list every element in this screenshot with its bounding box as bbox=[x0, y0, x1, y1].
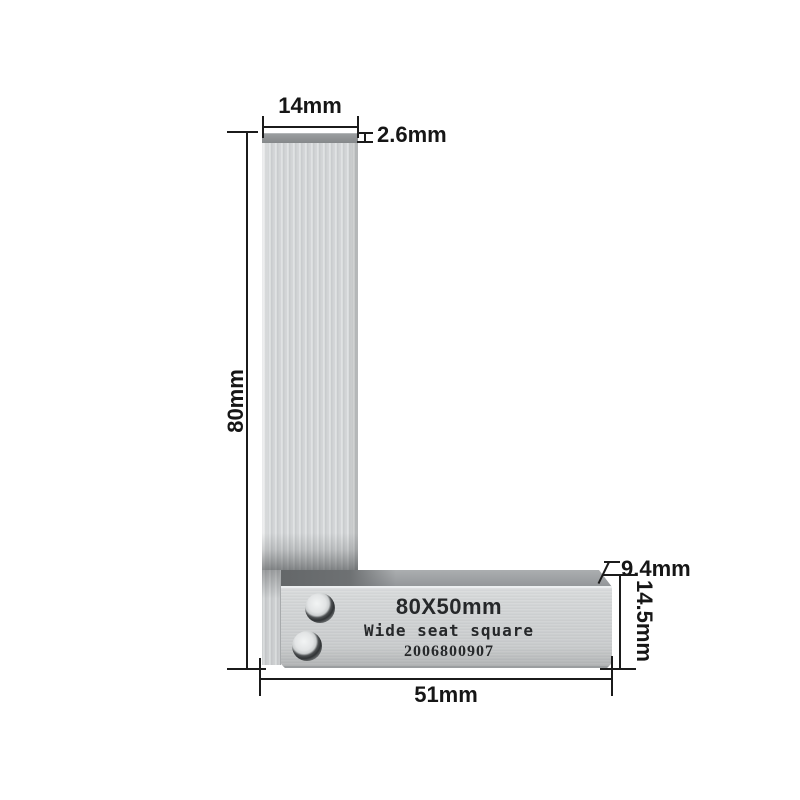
blade-lower-section bbox=[262, 570, 281, 665]
engraved-text: 80X50mm Wide seat square 2006800907 bbox=[319, 594, 579, 662]
rivet-bottom bbox=[292, 631, 322, 661]
dim-label-seat-top-offset: 9.4mm bbox=[621, 558, 691, 580]
dim-tick-seat-length-right bbox=[611, 656, 613, 696]
dim-label-seat-length: 51mm bbox=[396, 684, 496, 706]
seat-bottom-edge bbox=[281, 666, 612, 668]
dim-tick-seat-length-left bbox=[259, 658, 261, 696]
blade-top-edge bbox=[262, 133, 358, 143]
dim-tick-seat-thickness-top bbox=[602, 574, 636, 576]
dim-label-blade-thickness: 2.6mm bbox=[377, 124, 447, 146]
dim-label-seat-thickness: 14.5mm bbox=[633, 571, 655, 671]
dim-tick-seat-thickness-bottom bbox=[600, 668, 636, 670]
dim-tick-blade-length-top bbox=[227, 131, 258, 133]
blade-bottom-shadow bbox=[262, 533, 358, 570]
seat: 80X50mm Wide seat square 2006800907 bbox=[281, 570, 612, 668]
blade bbox=[262, 143, 358, 570]
dim-line-blade-width bbox=[262, 126, 359, 128]
engraved-serial: 2006800907 bbox=[319, 642, 579, 662]
engraved-name: Wide seat square bbox=[319, 620, 579, 642]
dim-line-blade-thickness bbox=[364, 132, 366, 143]
seat-strip-highlight bbox=[281, 586, 612, 588]
product-dimension-diagram: 80X50mm Wide seat square 2006800907 14mm… bbox=[0, 0, 800, 800]
dim-tick-blade-width-left bbox=[262, 116, 264, 138]
dim-tick-blade-width-right bbox=[357, 116, 359, 138]
dim-label-blade-length: 80mm bbox=[225, 351, 247, 451]
engraved-size: 80X50mm bbox=[319, 594, 579, 620]
seat-strip-shadow bbox=[281, 570, 396, 586]
dim-line-seat-length bbox=[260, 678, 613, 680]
dim-line-seat-thickness bbox=[619, 574, 621, 670]
dim-label-blade-width: 14mm bbox=[258, 95, 362, 117]
